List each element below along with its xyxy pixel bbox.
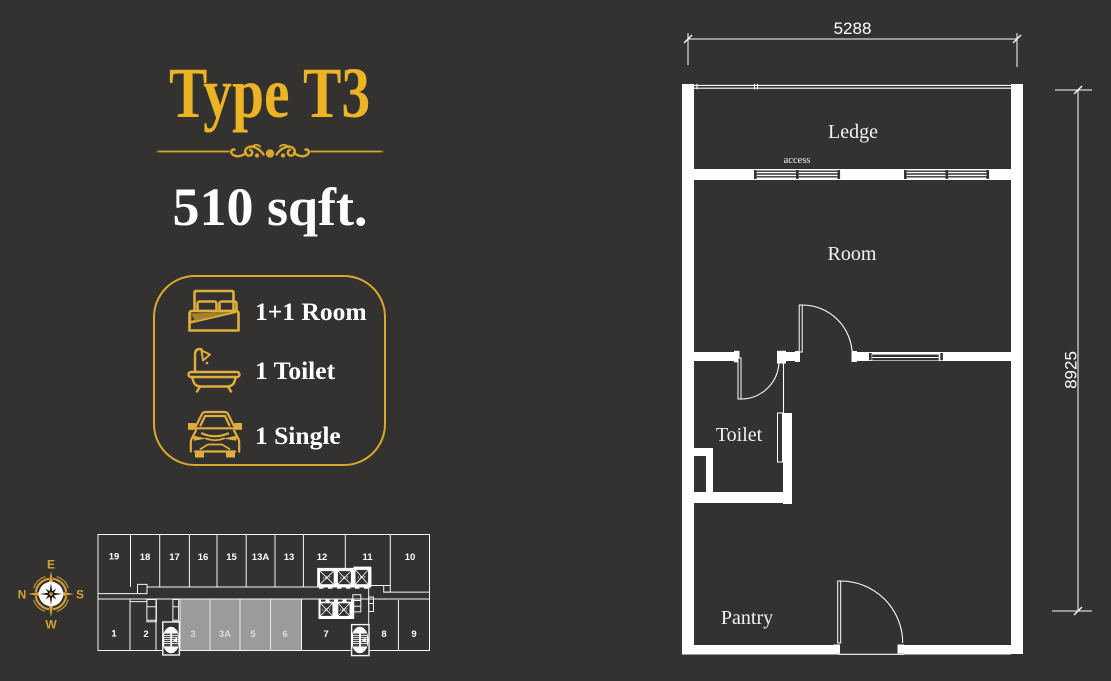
svg-text:3: 3 [190, 629, 195, 640]
svg-text:11: 11 [362, 552, 373, 563]
svg-text:18: 18 [140, 552, 151, 563]
svg-text:12: 12 [317, 552, 328, 563]
svg-text:Toilet: Toilet [716, 424, 763, 446]
svg-text:9: 9 [411, 629, 416, 640]
svg-text:5288: 5288 [834, 19, 872, 38]
svg-text:8925: 8925 [1062, 351, 1081, 389]
svg-text:LIFT: LIFT [322, 607, 331, 612]
svg-text:E: E [47, 558, 55, 572]
svg-text:W: W [45, 618, 57, 632]
svg-text:19: 19 [109, 552, 120, 563]
svg-text:N: N [18, 588, 27, 602]
svg-text:Pantry: Pantry [721, 607, 773, 629]
svg-text:1: 1 [111, 629, 117, 640]
svg-text:LIFT: LIFT [340, 607, 349, 612]
svg-text:13A: 13A [252, 552, 270, 563]
svg-text:17: 17 [169, 552, 180, 563]
svg-text:10: 10 [405, 552, 416, 563]
svg-text:LIFT: LIFT [340, 575, 349, 580]
svg-text:Ledge: Ledge [828, 121, 878, 143]
svg-text:LIFT: LIFT [358, 575, 367, 580]
svg-text:13: 13 [284, 552, 295, 563]
svg-text:7: 7 [323, 629, 328, 640]
svg-text:Room: Room [828, 243, 877, 265]
svg-text:15: 15 [226, 552, 237, 563]
svg-text:5: 5 [250, 629, 256, 640]
svg-text:3A: 3A [219, 629, 231, 640]
svg-text:access: access [784, 155, 811, 166]
svg-text:8: 8 [381, 629, 386, 640]
svg-text:S: S [76, 588, 84, 602]
svg-text:6: 6 [282, 629, 287, 640]
svg-text:LIFT: LIFT [323, 575, 332, 580]
svg-text:16: 16 [198, 552, 209, 563]
svg-text:2: 2 [143, 629, 148, 640]
